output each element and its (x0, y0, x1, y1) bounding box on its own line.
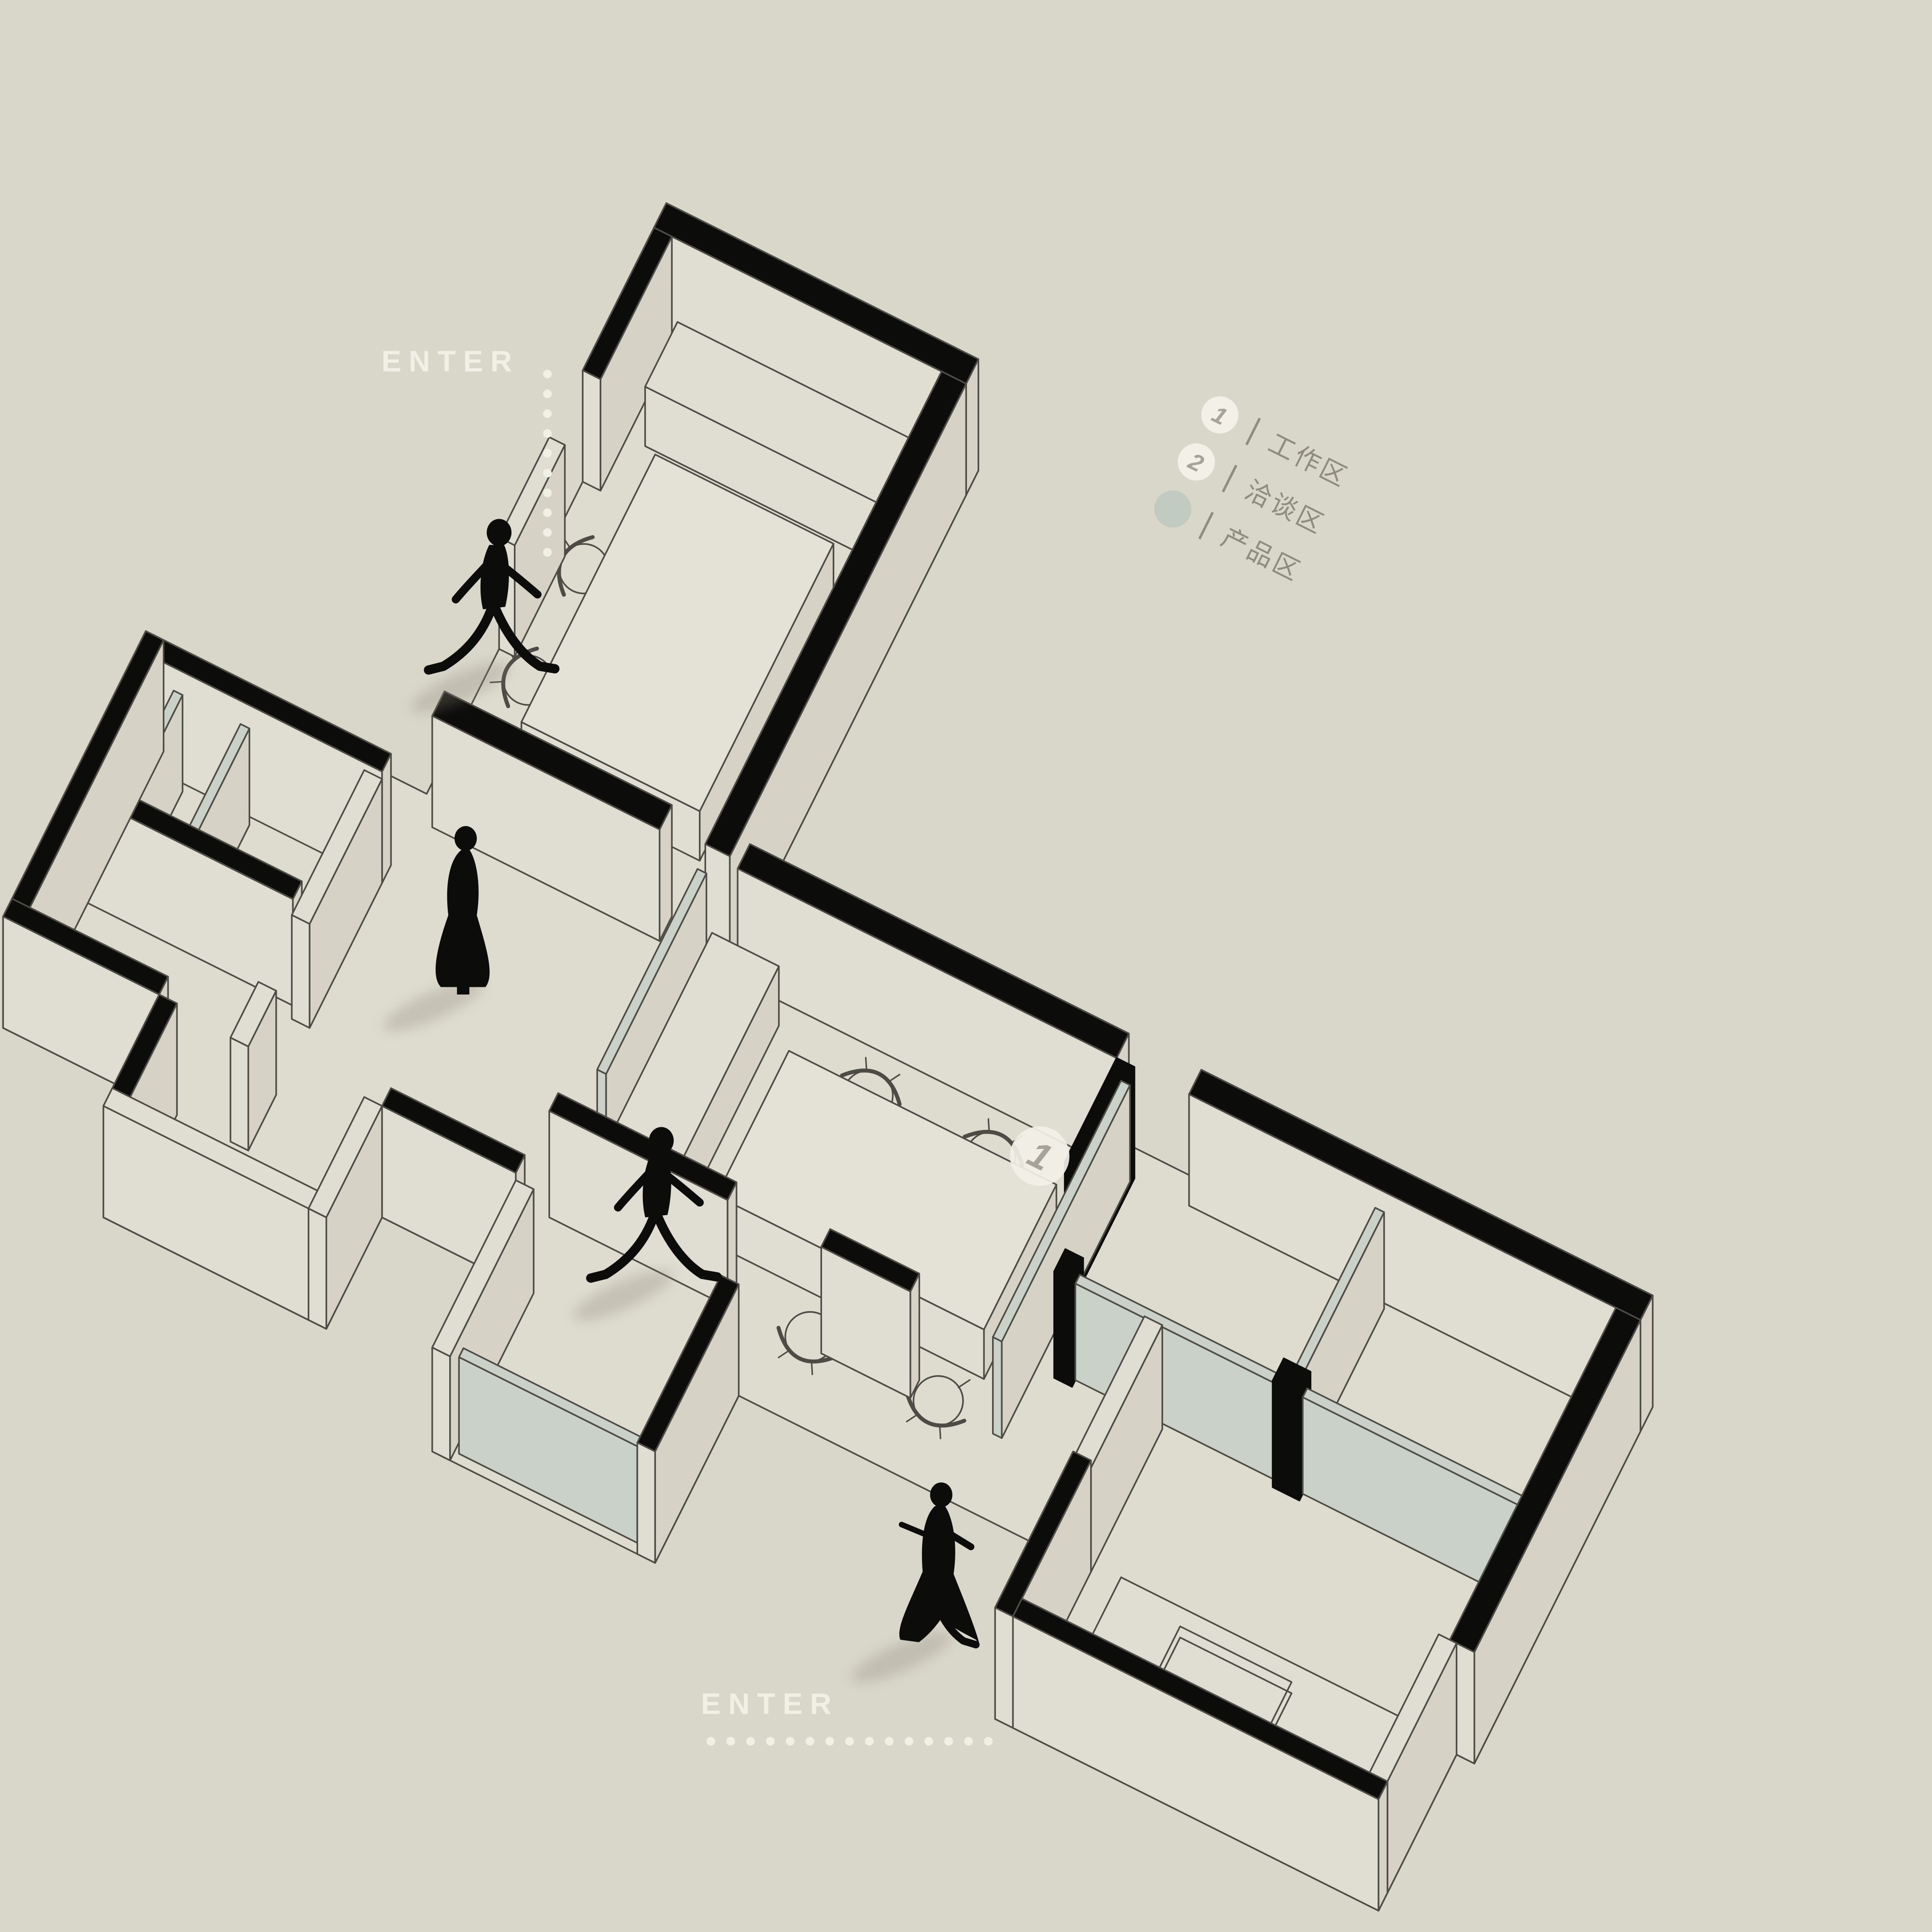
head (649, 1127, 674, 1154)
face-front (432, 1348, 450, 1461)
face-right (1378, 1781, 1387, 1911)
face-front (993, 1337, 1002, 1438)
face-front (637, 1443, 655, 1563)
floor-plan-stage: 21 1工作区2洽谈区产品区ENTERENTER (0, 0, 1932, 1932)
enter-label: ENTER (382, 345, 519, 378)
head (930, 1482, 952, 1507)
face-front (995, 1607, 1013, 1728)
face-front (292, 915, 310, 1028)
face-front (230, 1037, 248, 1151)
face-front (582, 370, 600, 491)
floor-plan-canvas: 21 1工作区2洽谈区产品区ENTERENTER (0, 0, 1932, 1932)
enter-label: ENTER (701, 1688, 838, 1721)
head (487, 519, 511, 546)
face-right (382, 754, 391, 883)
face-front (1054, 1271, 1072, 1387)
head (455, 826, 477, 851)
face-front (309, 1208, 327, 1329)
face-right (910, 1274, 919, 1398)
face-front (1273, 1380, 1299, 1500)
